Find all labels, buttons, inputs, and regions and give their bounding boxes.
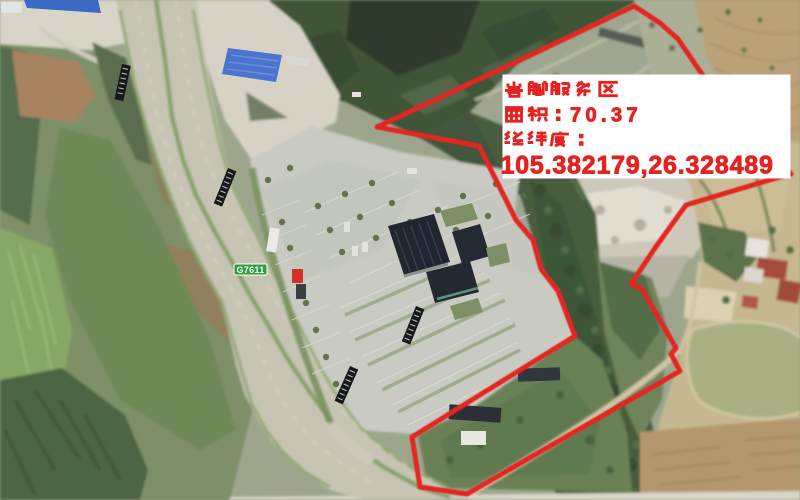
svg-text:70.37: 70.37 xyxy=(570,105,642,127)
svg-text:G7611: G7611 xyxy=(236,265,264,275)
svg-text:105.382179,26.328489: 105.382179,26.328489 xyxy=(501,152,774,180)
